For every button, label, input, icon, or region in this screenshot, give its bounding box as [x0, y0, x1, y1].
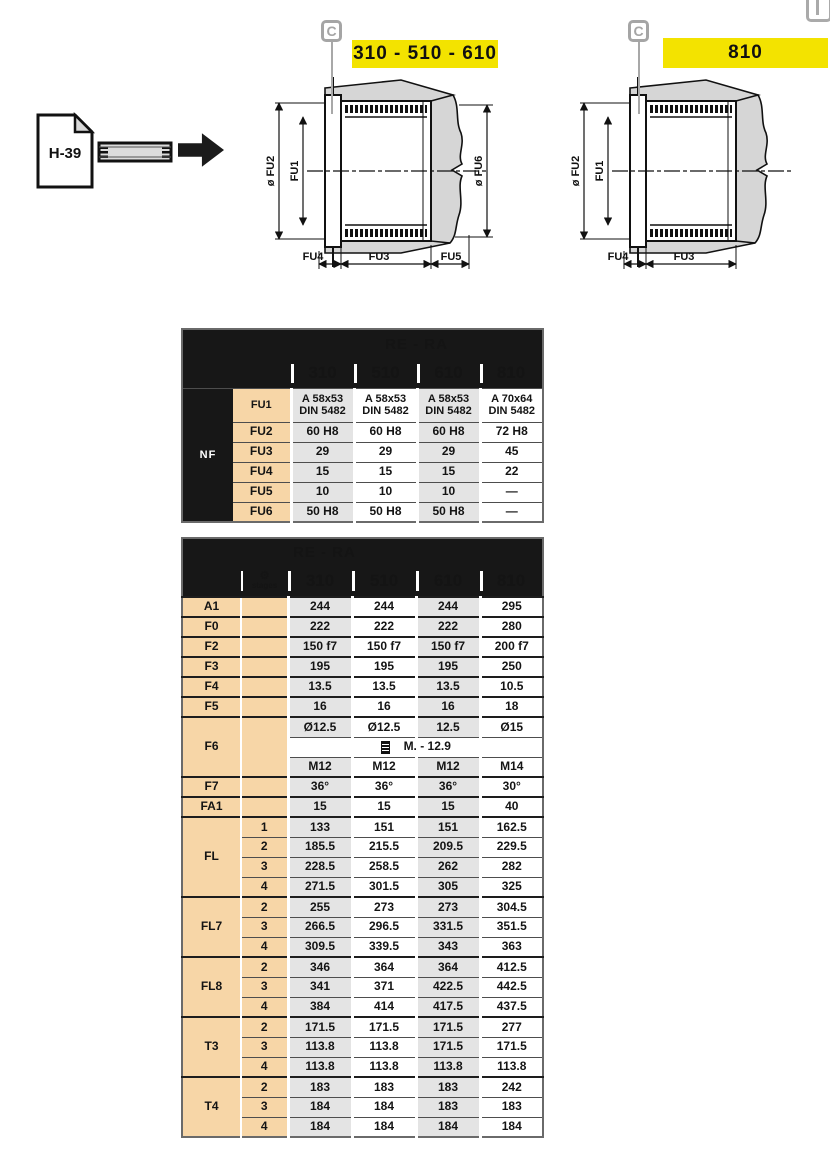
page-ref-label: H-39 — [49, 145, 82, 162]
table-cell: 183 — [416, 1097, 480, 1117]
table-cell: 412.5 — [480, 957, 543, 977]
table-cell: 45 — [480, 442, 543, 462]
table-cell: 222 — [288, 617, 352, 637]
table-cell: 296.5 — [352, 917, 416, 937]
table-cell: — — [480, 482, 543, 502]
table-cell: 184 — [288, 1097, 352, 1117]
table-cell: 151 — [416, 817, 480, 837]
table-cell: 363 — [480, 937, 543, 957]
flange-diagram-310-510-610: ø FU2 FU1 ø FU6 FU4 FU3 FU5 — [255, 75, 505, 275]
table-row: F2150 f7150 f7150 f7200 f7 — [182, 637, 543, 657]
row-label: FU6 — [233, 502, 291, 522]
row-label: F4 — [182, 677, 241, 697]
column-header-610: 610 — [417, 359, 480, 388]
table-cell: 29 — [354, 442, 417, 462]
table-cell: 185.5 — [288, 837, 352, 857]
table-cell: 364 — [352, 957, 416, 977]
stage-cell — [241, 617, 288, 637]
table-cell: 351.5 — [480, 917, 543, 937]
row-label: T3 — [182, 1017, 241, 1077]
table-cell: 30° — [480, 777, 543, 797]
table-cell: 40 — [480, 797, 543, 817]
stage-cell: 4 — [241, 937, 288, 957]
table-cell: 282 — [480, 857, 543, 877]
table-cell: 150 f7 — [352, 637, 416, 657]
table-cell: 309.5 — [288, 937, 352, 957]
table-cell: 339.5 — [352, 937, 416, 957]
dim-label-fu3: FU3 — [369, 251, 390, 263]
dim-label-fu3: FU3 — [674, 251, 695, 263]
page-ref-icon: H-39 — [34, 111, 96, 191]
section-marker-letter: C — [326, 23, 336, 39]
dim-label-fu4: FU4 — [608, 251, 630, 263]
table-cell: 15 — [354, 462, 417, 482]
table-cell: 15 — [352, 797, 416, 817]
stage-cell: 2 — [241, 897, 288, 917]
table-cell: A 70x64 DIN 5482 — [480, 388, 543, 422]
table-row: FL82346364364412.5 — [182, 957, 543, 977]
table-cell: 209.5 — [416, 837, 480, 857]
stage-cell: 1 — [241, 817, 288, 837]
table-cell: 280 — [480, 617, 543, 637]
table-cell: 346 — [288, 957, 352, 977]
table-cell: A 58x53 DIN 5482 — [291, 388, 354, 422]
row-label: T4 — [182, 1077, 241, 1137]
table-row: F0222222222280 — [182, 617, 543, 637]
table-cell: 258.5 — [352, 857, 416, 877]
stage-cell: 2 — [241, 957, 288, 977]
row-label: F7 — [182, 777, 241, 797]
table-cell: 60 H8 — [417, 422, 480, 442]
table-cell: 113.8 — [416, 1057, 480, 1077]
table-cell: M12 — [416, 757, 480, 777]
table-cell: 295 — [480, 597, 543, 617]
table-cell: M12 — [352, 757, 416, 777]
table-row: FL1133151151162.5 — [182, 817, 543, 837]
table-cell: 36° — [288, 777, 352, 797]
table-row: FU260 H860 H860 H872 H8 — [182, 422, 543, 442]
table-row: NFFU1A 58x53 DIN 5482A 58x53 DIN 5482A 5… — [182, 388, 543, 422]
table-cell: 113.8 — [480, 1057, 543, 1077]
stage-cell: 3 — [241, 1097, 288, 1117]
stage-cell: 3 — [241, 917, 288, 937]
table-cell: 384 — [288, 997, 352, 1017]
model-range-badge-810: 810 — [663, 38, 828, 68]
row-label: F2 — [182, 637, 241, 657]
column-header-310: 310 — [291, 359, 354, 388]
table-row: FU650 H850 H850 H8— — [182, 502, 543, 522]
stage-cell — [241, 797, 288, 817]
dim-label-fu5: FU5 — [441, 251, 462, 263]
stage-cell: 3 — [241, 977, 288, 997]
table-row: T42183183183242 — [182, 1077, 543, 1097]
table-cell: 183 — [416, 1077, 480, 1097]
table-cell: 262 — [416, 857, 480, 877]
table-cell: 437.5 — [480, 997, 543, 1017]
dim-label-fu4: FU4 — [303, 251, 325, 263]
row-label: F6 — [182, 717, 241, 777]
table-cell: 273 — [352, 897, 416, 917]
table-cell: 171.5 — [416, 1037, 480, 1057]
bolt-class-cell: M. - 12.9 — [288, 737, 543, 757]
table-cell: 150 f7 — [416, 637, 480, 657]
table-cell: 133 — [288, 817, 352, 837]
section-marker-c-left: C — [321, 20, 342, 42]
table-cell: 50 H8 — [417, 502, 480, 522]
table-cell: Ø12.5 — [352, 717, 416, 737]
table-cell: 250 — [480, 657, 543, 677]
table-row: F516161618 — [182, 697, 543, 717]
table-cell: 184 — [352, 1097, 416, 1117]
dim-label-fu2: ø FU2 — [570, 156, 582, 187]
table-cell: 195 — [416, 657, 480, 677]
table-cell: 13.5 — [352, 677, 416, 697]
table-cell: 50 H8 — [291, 502, 354, 522]
stage-cell: 4 — [241, 877, 288, 897]
table-cell: 16 — [416, 697, 480, 717]
clipped-corner-icon — [806, 0, 830, 22]
row-label: FL8 — [182, 957, 241, 1017]
table-cell: 184 — [480, 1117, 543, 1137]
table-cell: 113.8 — [352, 1057, 416, 1077]
table-cell: Ø12.5 — [288, 717, 352, 737]
column-header-310: 310 — [288, 566, 352, 597]
stage-cell — [241, 637, 288, 657]
table-cell: 151 — [352, 817, 416, 837]
table-cell: 60 H8 — [354, 422, 417, 442]
dimensions-table-main: RE - RA ⚙ stages 310 510 610 810 A124424… — [181, 537, 544, 1138]
table-cell: A 58x53 DIN 5482 — [417, 388, 480, 422]
stage-cell — [241, 597, 288, 617]
side-label-nf: NF — [182, 388, 233, 522]
table-cell: 16 — [352, 697, 416, 717]
table-cell: M12 — [288, 757, 352, 777]
dim-label-fu2: ø FU2 — [265, 156, 277, 187]
table-row: T32171.5171.5171.5277 — [182, 1017, 543, 1037]
table-row: F6Ø12.5Ø12.512.5Ø15 — [182, 717, 543, 737]
table-row: FU329292945 — [182, 442, 543, 462]
table-cell: 18 — [480, 697, 543, 717]
row-label: A1 — [182, 597, 241, 617]
row-label: FU5 — [233, 482, 291, 502]
table-cell: 171.5 — [480, 1037, 543, 1057]
stage-cell — [241, 677, 288, 697]
table-row: F736°36°36°30° — [182, 777, 543, 797]
table-cell: 414 — [352, 997, 416, 1017]
stage-cell — [241, 657, 288, 677]
stage-cell: 4 — [241, 1057, 288, 1077]
column-header-810: 810 — [480, 566, 543, 597]
table-title: RE - RA — [291, 329, 543, 359]
table-cell: 183 — [352, 1077, 416, 1097]
table-cell: 195 — [288, 657, 352, 677]
table-row: FU5101010— — [182, 482, 543, 502]
table-cell: 184 — [288, 1117, 352, 1137]
table-cell: 242 — [480, 1077, 543, 1097]
table-cell: 113.8 — [288, 1037, 352, 1057]
table-cell: 171.5 — [288, 1017, 352, 1037]
stage-cell: 2 — [241, 1017, 288, 1037]
column-header-510: 510 — [354, 359, 417, 388]
table-cell: 222 — [352, 617, 416, 637]
table-cell: 244 — [416, 597, 480, 617]
table-cell: 273 — [416, 897, 480, 917]
shaft-icon — [95, 133, 175, 173]
table-cell: 15 — [416, 797, 480, 817]
table-cell: 50 H8 — [354, 502, 417, 522]
row-label: FU1 — [233, 388, 291, 422]
table-row: FL72255273273304.5 — [182, 897, 543, 917]
table-cell: A 58x53 DIN 5482 — [354, 388, 417, 422]
dim-label-fu6: ø FU6 — [473, 156, 485, 187]
table-cell: 183 — [288, 1077, 352, 1097]
table-cell: 162.5 — [480, 817, 543, 837]
table-cell: 29 — [417, 442, 480, 462]
row-label: FU4 — [233, 462, 291, 482]
table-cell: 10.5 — [480, 677, 543, 697]
table-cell: 422.5 — [416, 977, 480, 997]
model-range-badge-310-510-610: 310 - 510 - 610 — [352, 40, 498, 68]
table-cell: 113.8 — [288, 1057, 352, 1077]
table-cell: 304.5 — [480, 897, 543, 917]
table-cell: 15 — [288, 797, 352, 817]
table-cell: 72 H8 — [480, 422, 543, 442]
table-cell: 244 — [288, 597, 352, 617]
column-header-510: 510 — [352, 566, 416, 597]
section-marker-c-right: C — [628, 20, 649, 42]
table-cell: 343 — [416, 937, 480, 957]
stage-cell: 2 — [241, 1077, 288, 1097]
dim-label-fu1: FU1 — [289, 161, 301, 182]
table-cell: 183 — [480, 1097, 543, 1117]
table-cell: 29 — [291, 442, 354, 462]
table-cell: 305 — [416, 877, 480, 897]
table-row: A1244244244295 — [182, 597, 543, 617]
table-cell: — — [480, 502, 543, 522]
table-cell: M14 — [480, 757, 543, 777]
table-cell: 331.5 — [416, 917, 480, 937]
table-cell: 150 f7 — [288, 637, 352, 657]
column-header-810: 810 — [480, 359, 543, 388]
dimensions-table-nf: RE - RA 310 510 610 810 NFFU1A 58x53 DIN… — [181, 328, 544, 523]
table-cell: 215.5 — [352, 837, 416, 857]
row-label: F3 — [182, 657, 241, 677]
table-cell: 13.5 — [416, 677, 480, 697]
table-row: FA115151540 — [182, 797, 543, 817]
table-cell: 200 f7 — [480, 637, 543, 657]
stage-cell — [241, 777, 288, 797]
table-cell: 371 — [352, 977, 416, 997]
table-cell: 36° — [352, 777, 416, 797]
table-cell: 301.5 — [352, 877, 416, 897]
table-cell: 171.5 — [352, 1017, 416, 1037]
table-cell: 12.5 — [416, 717, 480, 737]
stage-cell: 4 — [241, 997, 288, 1017]
bolt-class-text: M. - 12.9 — [404, 739, 451, 753]
stage-cell — [241, 717, 288, 777]
row-label: F0 — [182, 617, 241, 637]
table-row: F413.513.513.510.5 — [182, 677, 543, 697]
table-cell: 277 — [480, 1017, 543, 1037]
table-cell: 22 — [480, 462, 543, 482]
bolt-icon — [381, 741, 390, 754]
stages-label: stages — [252, 581, 277, 590]
table-cell: 184 — [416, 1117, 480, 1137]
row-label: F5 — [182, 697, 241, 717]
table-cell: 244 — [352, 597, 416, 617]
table-cell: 10 — [354, 482, 417, 502]
table-cell: 222 — [416, 617, 480, 637]
table-cell: 255 — [288, 897, 352, 917]
table-corner — [182, 566, 241, 597]
table-cell: 229.5 — [480, 837, 543, 857]
stage-cell — [241, 697, 288, 717]
row-label: FL7 — [182, 897, 241, 957]
stages-column-header: ⚙ stages — [241, 566, 288, 597]
stage-cell: 3 — [241, 1037, 288, 1057]
dim-label-fu1: FU1 — [594, 161, 606, 182]
table-row: FU415151522 — [182, 462, 543, 482]
table-cell: 36° — [416, 777, 480, 797]
table-cell: 364 — [416, 957, 480, 977]
table-row: F3195195195250 — [182, 657, 543, 677]
row-label: FU2 — [233, 422, 291, 442]
table-cell: 10 — [417, 482, 480, 502]
table-cell: 195 — [352, 657, 416, 677]
table-cell: 417.5 — [416, 997, 480, 1017]
table-cell: 15 — [417, 462, 480, 482]
table-title: RE - RA — [182, 538, 543, 566]
row-label: FL — [182, 817, 241, 897]
table-cell: 184 — [352, 1117, 416, 1137]
table-cell: 113.8 — [352, 1037, 416, 1057]
table-cell: 325 — [480, 877, 543, 897]
table-cell: 266.5 — [288, 917, 352, 937]
flange-diagram-810: ø FU2 FU1 FU4 FU3 — [560, 75, 810, 275]
row-label: FA1 — [182, 797, 241, 817]
table-cell: 271.5 — [288, 877, 352, 897]
table-cell: 228.5 — [288, 857, 352, 877]
table-cell: 16 — [288, 697, 352, 717]
stage-cell: 2 — [241, 837, 288, 857]
table-cell: 60 H8 — [291, 422, 354, 442]
stage-cell: 4 — [241, 1117, 288, 1137]
table-cell: 10 — [291, 482, 354, 502]
table-cell: Ø15 — [480, 717, 543, 737]
table-cell: 442.5 — [480, 977, 543, 997]
catalog-page: H-39 C C 310 - 510 - 610 810 — [0, 0, 830, 1150]
table-cell: 13.5 — [288, 677, 352, 697]
table-corner — [182, 329, 291, 388]
stage-cell: 3 — [241, 857, 288, 877]
table-cell: 341 — [288, 977, 352, 997]
row-label: FU3 — [233, 442, 291, 462]
table-cell: 171.5 — [416, 1017, 480, 1037]
table-cell: 15 — [291, 462, 354, 482]
column-header-610: 610 — [416, 566, 480, 597]
section-marker-letter: C — [633, 23, 643, 39]
